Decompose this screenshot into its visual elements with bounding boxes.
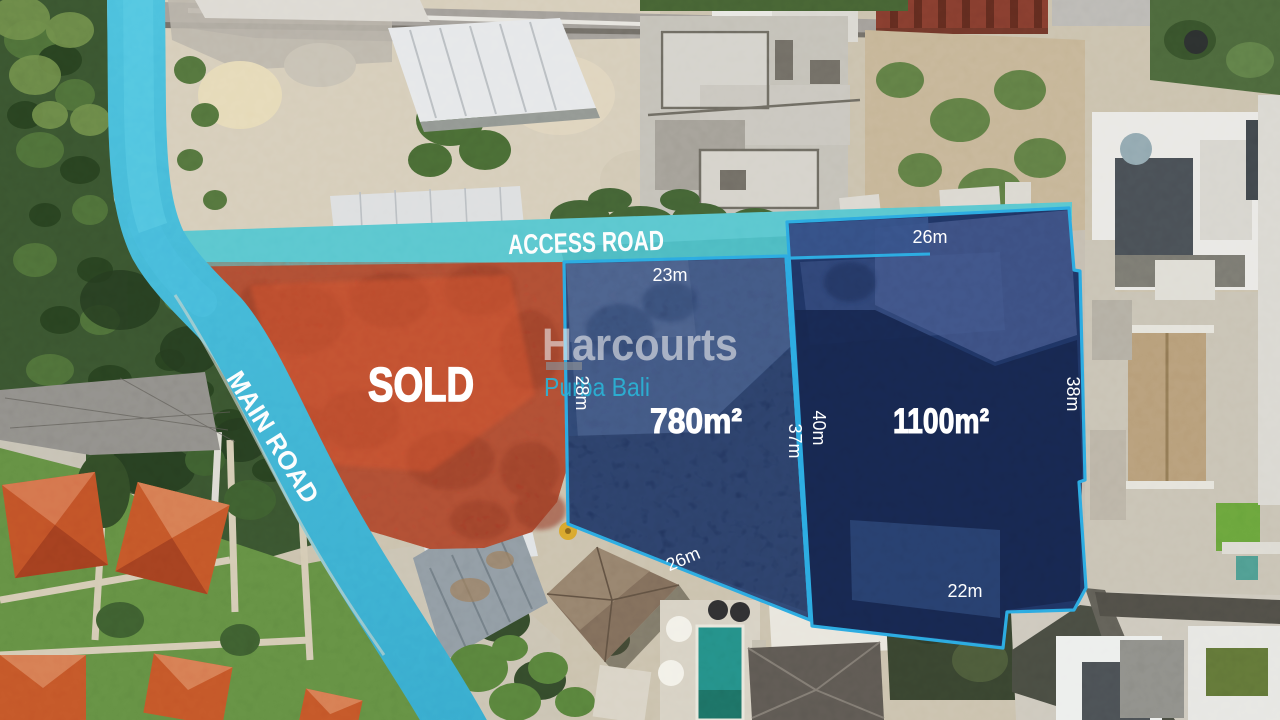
svg-text:37m: 37m	[785, 423, 805, 458]
svg-text:22m: 22m	[947, 581, 982, 601]
svg-text:780m²: 780m²	[650, 402, 742, 441]
svg-text:26m: 26m	[912, 227, 947, 247]
svg-text:40m: 40m	[809, 410, 829, 445]
svg-text:38m: 38m	[1063, 376, 1083, 411]
svg-text:ACCESS ROAD: ACCESS ROAD	[508, 225, 665, 260]
svg-text:1100m²: 1100m²	[893, 402, 989, 441]
svg-text:28m: 28m	[572, 375, 592, 410]
svg-text:SOLD: SOLD	[368, 359, 474, 412]
svg-text:Purba Bali: Purba Bali	[544, 372, 650, 402]
svg-text:23m: 23m	[652, 265, 687, 285]
